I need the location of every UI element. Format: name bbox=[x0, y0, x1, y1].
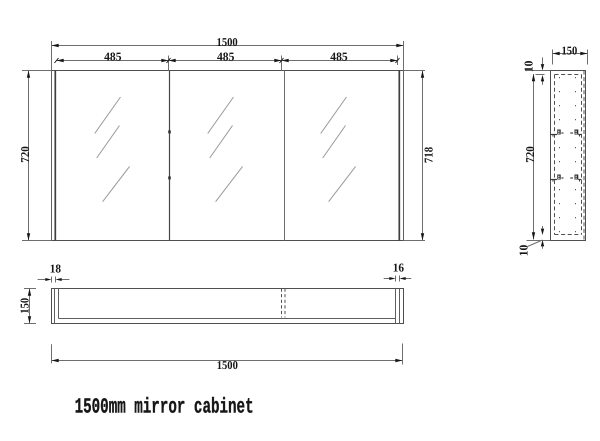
svg-text:720: 720 bbox=[523, 146, 537, 163]
svg-text:485: 485 bbox=[330, 49, 347, 63]
svg-text:10: 10 bbox=[522, 61, 536, 73]
svg-text:16: 16 bbox=[393, 261, 404, 275]
svg-text:720: 720 bbox=[18, 146, 32, 163]
svg-text:150: 150 bbox=[562, 44, 578, 58]
svg-text:1500mm mirror cabinet: 1500mm mirror cabinet bbox=[75, 394, 254, 419]
svg-text:1500: 1500 bbox=[217, 35, 238, 49]
svg-text:485: 485 bbox=[217, 49, 234, 63]
svg-text:150: 150 bbox=[18, 298, 32, 314]
svg-text:718: 718 bbox=[422, 147, 436, 163]
svg-text:18: 18 bbox=[50, 262, 61, 276]
svg-text:485: 485 bbox=[104, 49, 121, 63]
svg-text:1500: 1500 bbox=[217, 358, 238, 372]
svg-text:10: 10 bbox=[517, 245, 531, 257]
